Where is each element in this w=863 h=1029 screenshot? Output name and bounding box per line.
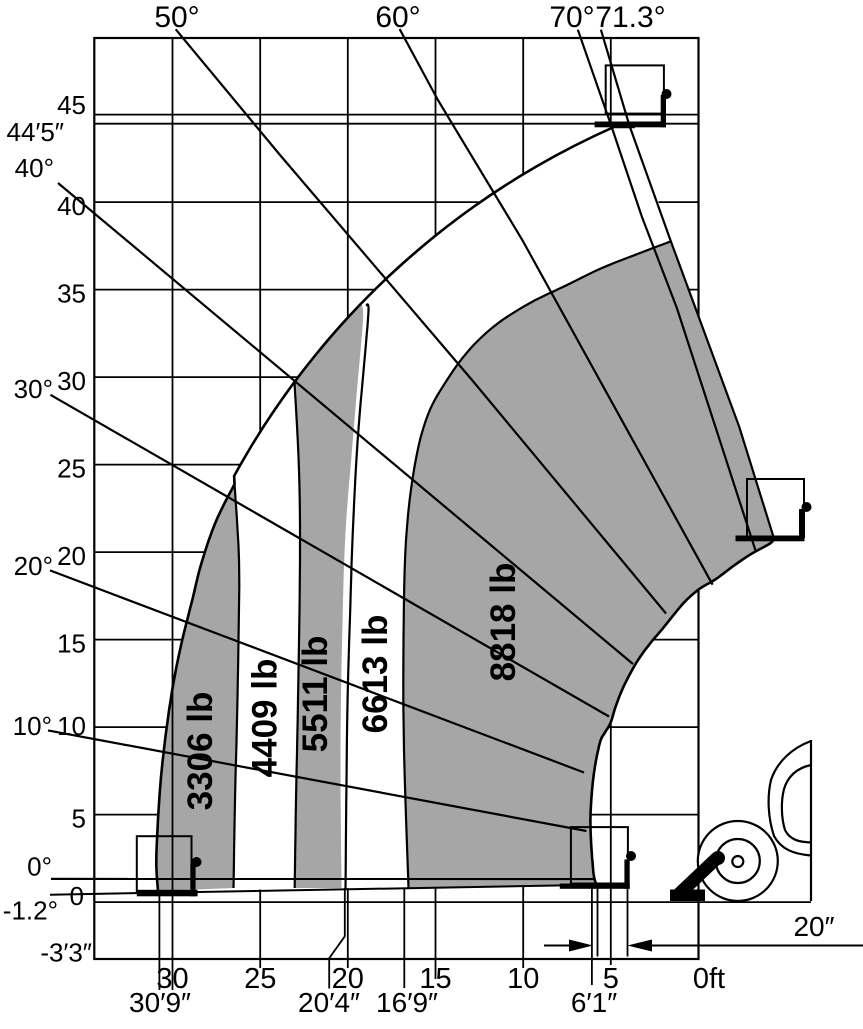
svg-text:16′9″: 16′9″ <box>376 987 438 1018</box>
svg-text:10°: 10° <box>13 711 52 741</box>
svg-text:45: 45 <box>57 90 86 120</box>
svg-text:70°: 70° <box>549 1 594 34</box>
svg-text:0: 0 <box>70 881 84 911</box>
svg-text:20°: 20° <box>14 551 53 581</box>
svg-text:5511 lb: 5511 lb <box>296 636 335 753</box>
svg-text:30′9″: 30′9″ <box>129 987 191 1018</box>
svg-text:44′5″: 44′5″ <box>7 117 64 147</box>
svg-text:71.3°: 71.3° <box>595 1 665 34</box>
svg-text:10: 10 <box>507 963 539 995</box>
svg-text:25: 25 <box>244 963 276 995</box>
svg-text:-3′3″: -3′3″ <box>40 938 92 968</box>
svg-text:40°: 40° <box>15 153 54 183</box>
svg-text:30: 30 <box>57 366 86 396</box>
svg-text:60°: 60° <box>375 1 420 34</box>
svg-text:15: 15 <box>57 629 86 659</box>
svg-text:0°: 0° <box>27 852 52 882</box>
svg-text:30°: 30° <box>14 374 53 404</box>
svg-text:50°: 50° <box>154 1 199 34</box>
svg-text:10: 10 <box>57 711 86 741</box>
svg-text:6′1″: 6′1″ <box>571 987 617 1018</box>
svg-text:40: 40 <box>57 191 86 221</box>
svg-text:5: 5 <box>72 804 86 834</box>
svg-text:0ft: 0ft <box>693 963 725 995</box>
svg-text:4409 lb: 4409 lb <box>246 659 285 778</box>
svg-text:8818 lb: 8818 lb <box>484 563 523 682</box>
svg-text:-1.2°: -1.2° <box>3 896 58 926</box>
svg-text:3306 lb: 3306 lb <box>181 692 220 811</box>
svg-text:6613 lb: 6613 lb <box>356 615 395 734</box>
svg-text:20″: 20″ <box>793 911 834 942</box>
svg-text:20′4″: 20′4″ <box>298 987 360 1018</box>
svg-text:35: 35 <box>57 279 86 309</box>
svg-text:25: 25 <box>57 454 86 484</box>
svg-text:20: 20 <box>57 541 86 571</box>
